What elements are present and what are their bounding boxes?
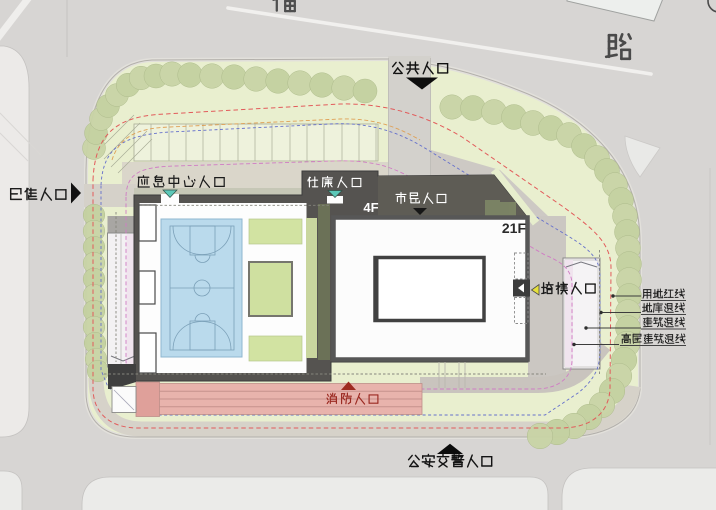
svg-text:4F: 4F (363, 200, 378, 215)
svg-text:21F: 21F (502, 220, 527, 236)
